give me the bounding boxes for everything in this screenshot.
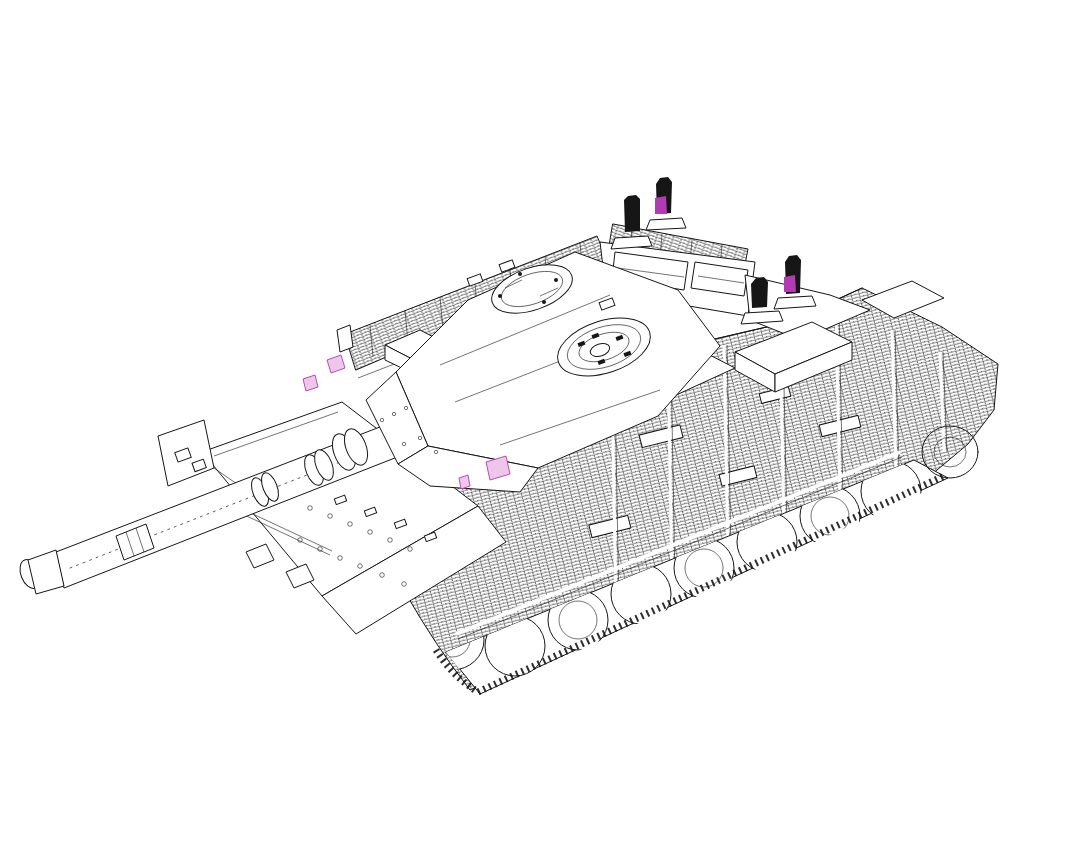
accent-fitting: [303, 375, 318, 391]
antenna-1: [624, 195, 640, 232]
tank-line-drawing: [0, 0, 1080, 864]
antenna-4: [751, 277, 768, 308]
tank-figure: [0, 0, 1080, 864]
document-canvas: [0, 0, 1080, 864]
antenna-base-accent: [784, 275, 796, 292]
accent-fitting: [327, 355, 345, 373]
accent-fitting: [459, 475, 470, 489]
antenna-base-accent: [655, 196, 667, 214]
antenna-mount: [646, 218, 686, 230]
fender-bracket: [337, 325, 353, 352]
